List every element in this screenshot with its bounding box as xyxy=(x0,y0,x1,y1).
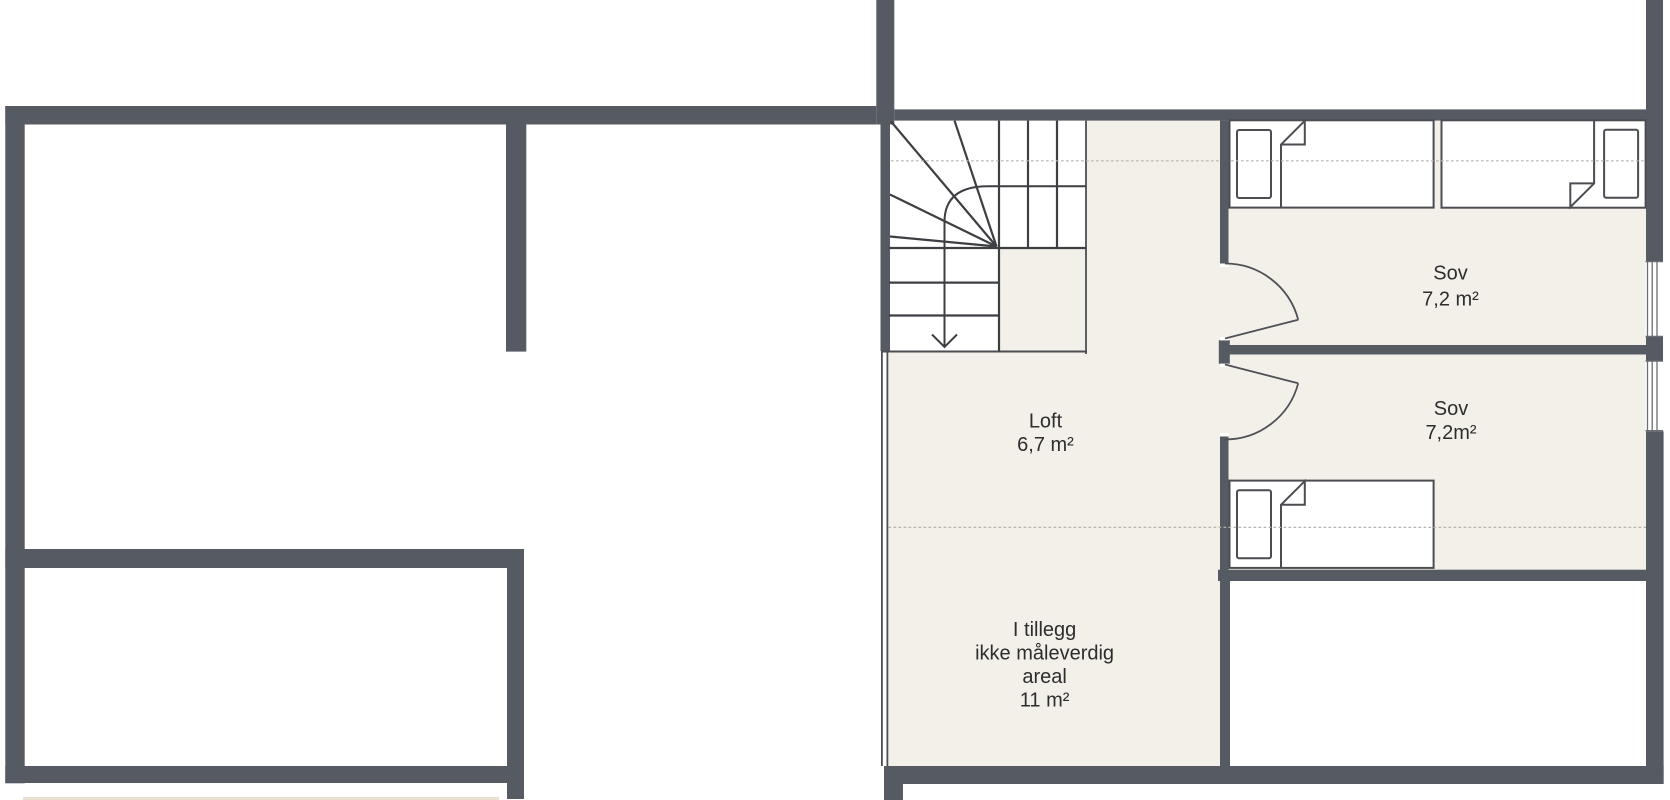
svg-text:areal: areal xyxy=(1022,666,1066,688)
svg-text:11 m²: 11 m² xyxy=(1020,690,1070,712)
svg-text:7,2m²: 7,2m² xyxy=(1425,422,1476,444)
svg-text:ikke måleverdig: ikke måleverdig xyxy=(975,643,1114,665)
svg-text:6,7 m²: 6,7 m² xyxy=(1017,434,1074,456)
svg-text:Sov: Sov xyxy=(1434,398,1468,420)
svg-text:Sov: Sov xyxy=(1433,263,1467,285)
svg-text:I tillegg: I tillegg xyxy=(1013,619,1076,641)
svg-text:Loft: Loft xyxy=(1029,410,1063,432)
svg-text:7,2 m²: 7,2 m² xyxy=(1422,289,1479,311)
